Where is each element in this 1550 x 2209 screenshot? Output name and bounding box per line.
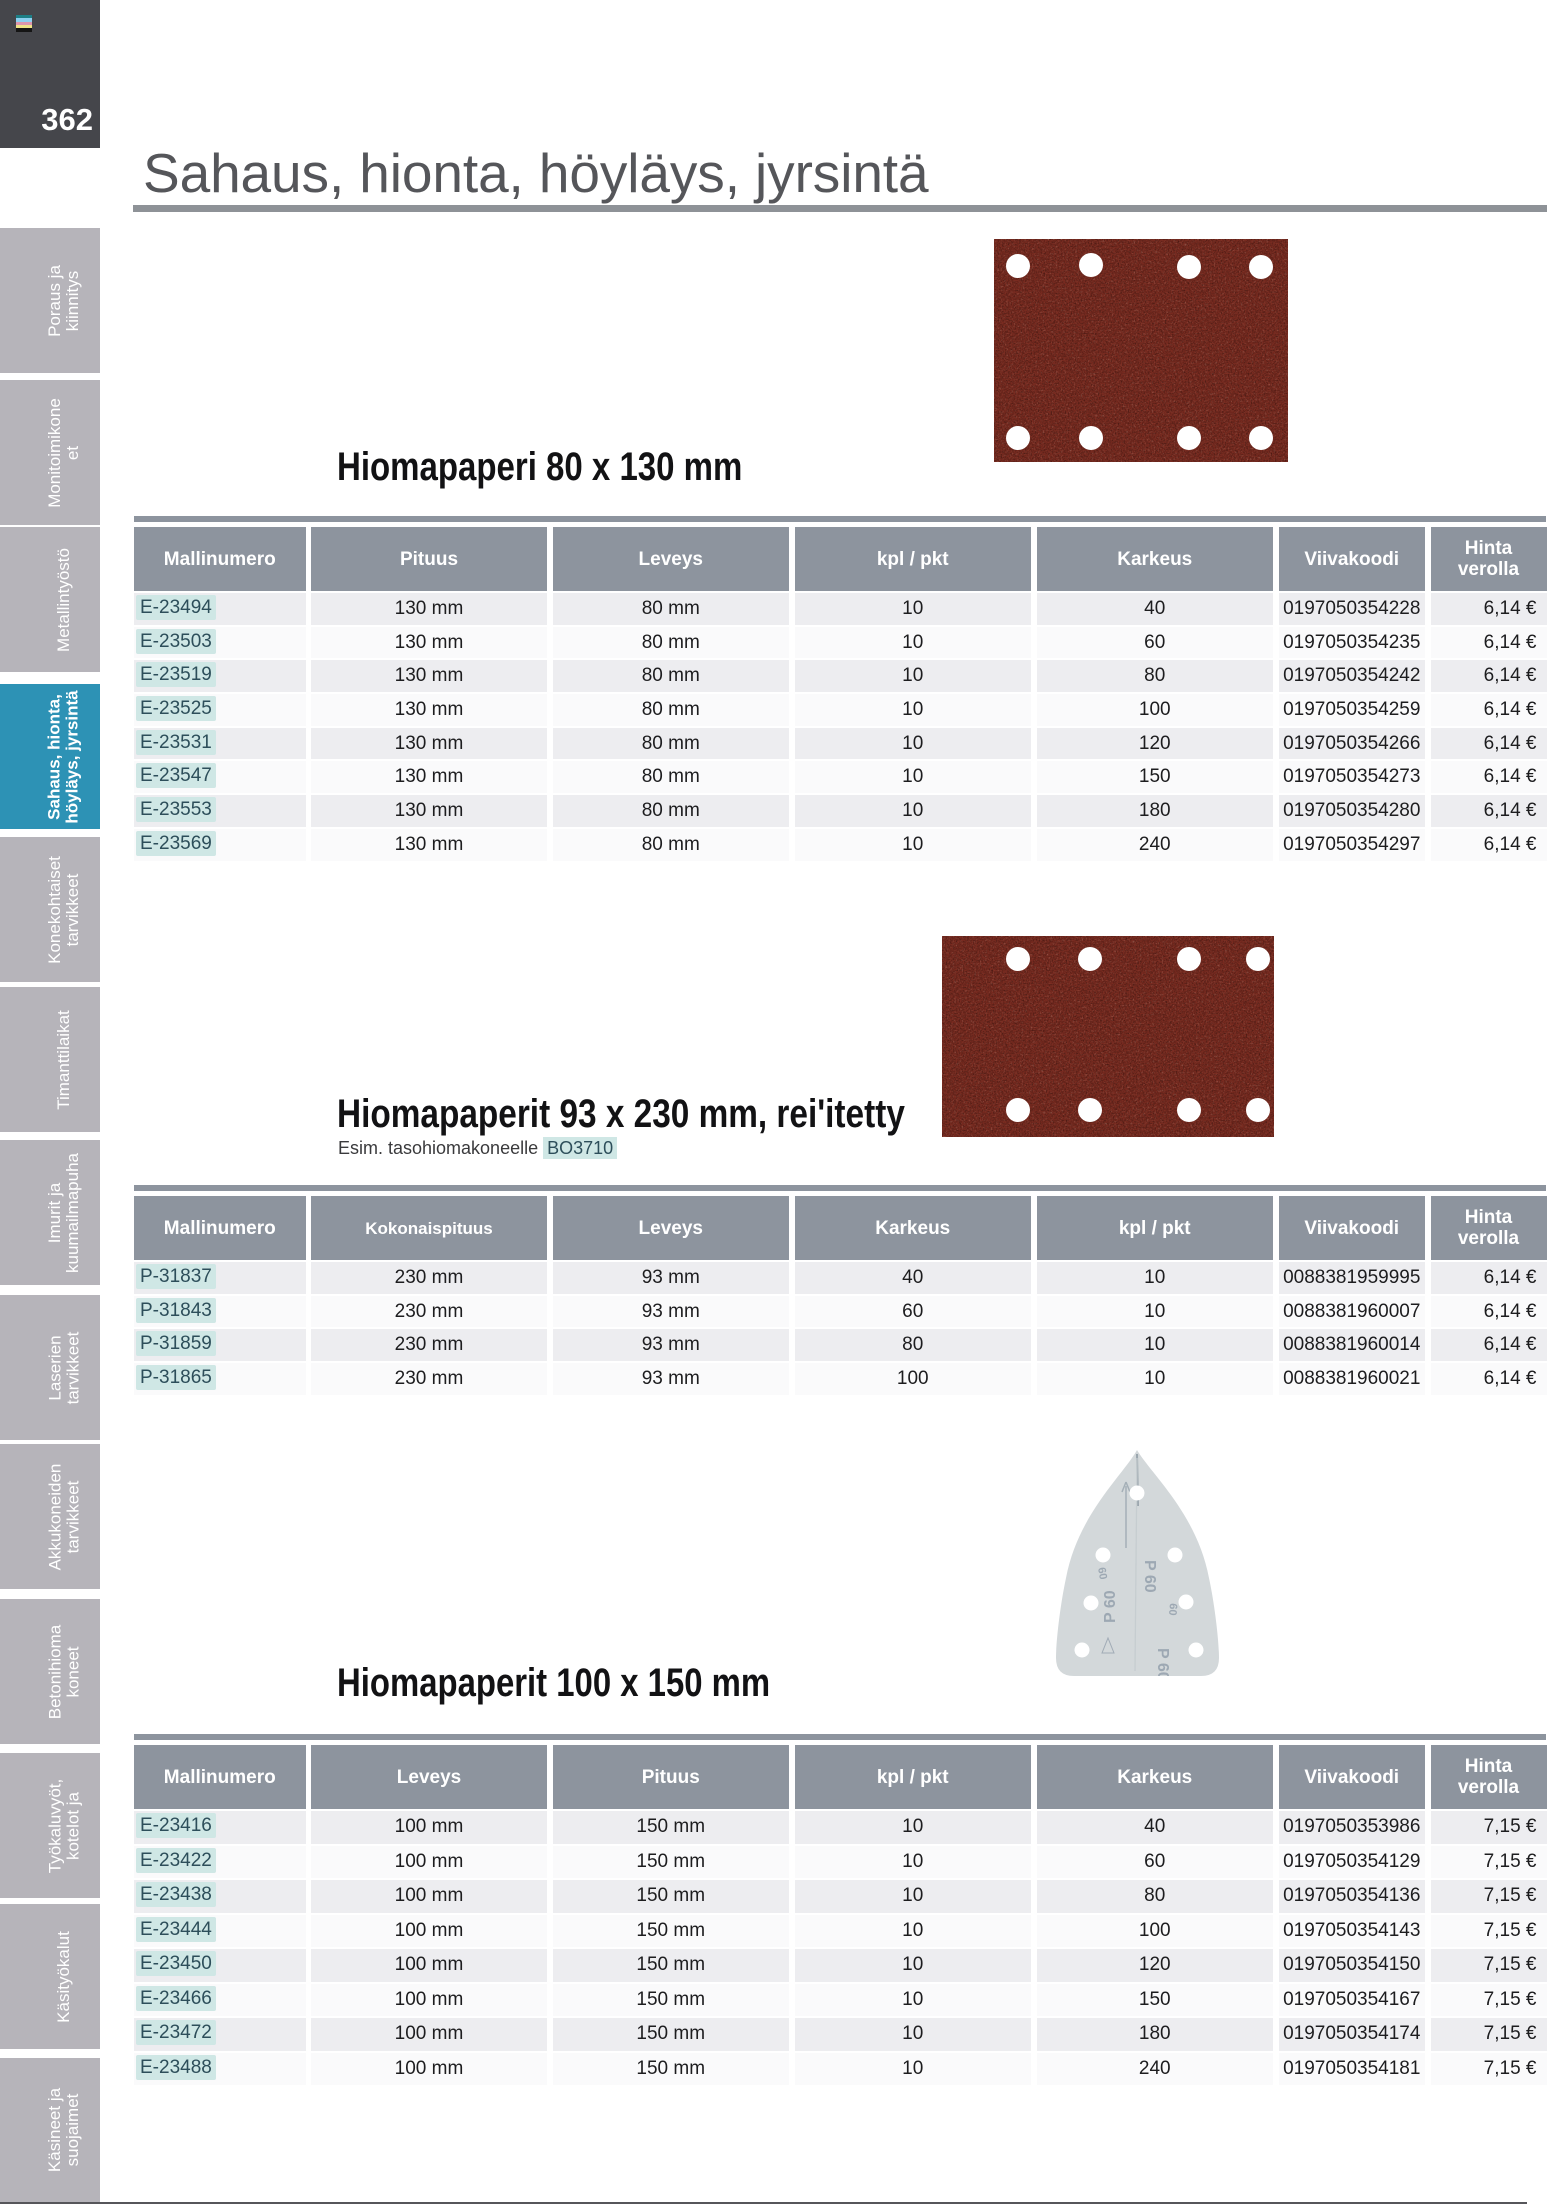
svg-text:60: 60 — [1166, 1603, 1179, 1616]
svg-text:60: 60 — [1095, 1566, 1109, 1580]
svg-text:P 60: P 60 — [1102, 1590, 1119, 1623]
svg-text:P 60: P 60 — [1141, 1560, 1158, 1593]
svg-text:P 60: P 60 — [1154, 1648, 1171, 1681]
